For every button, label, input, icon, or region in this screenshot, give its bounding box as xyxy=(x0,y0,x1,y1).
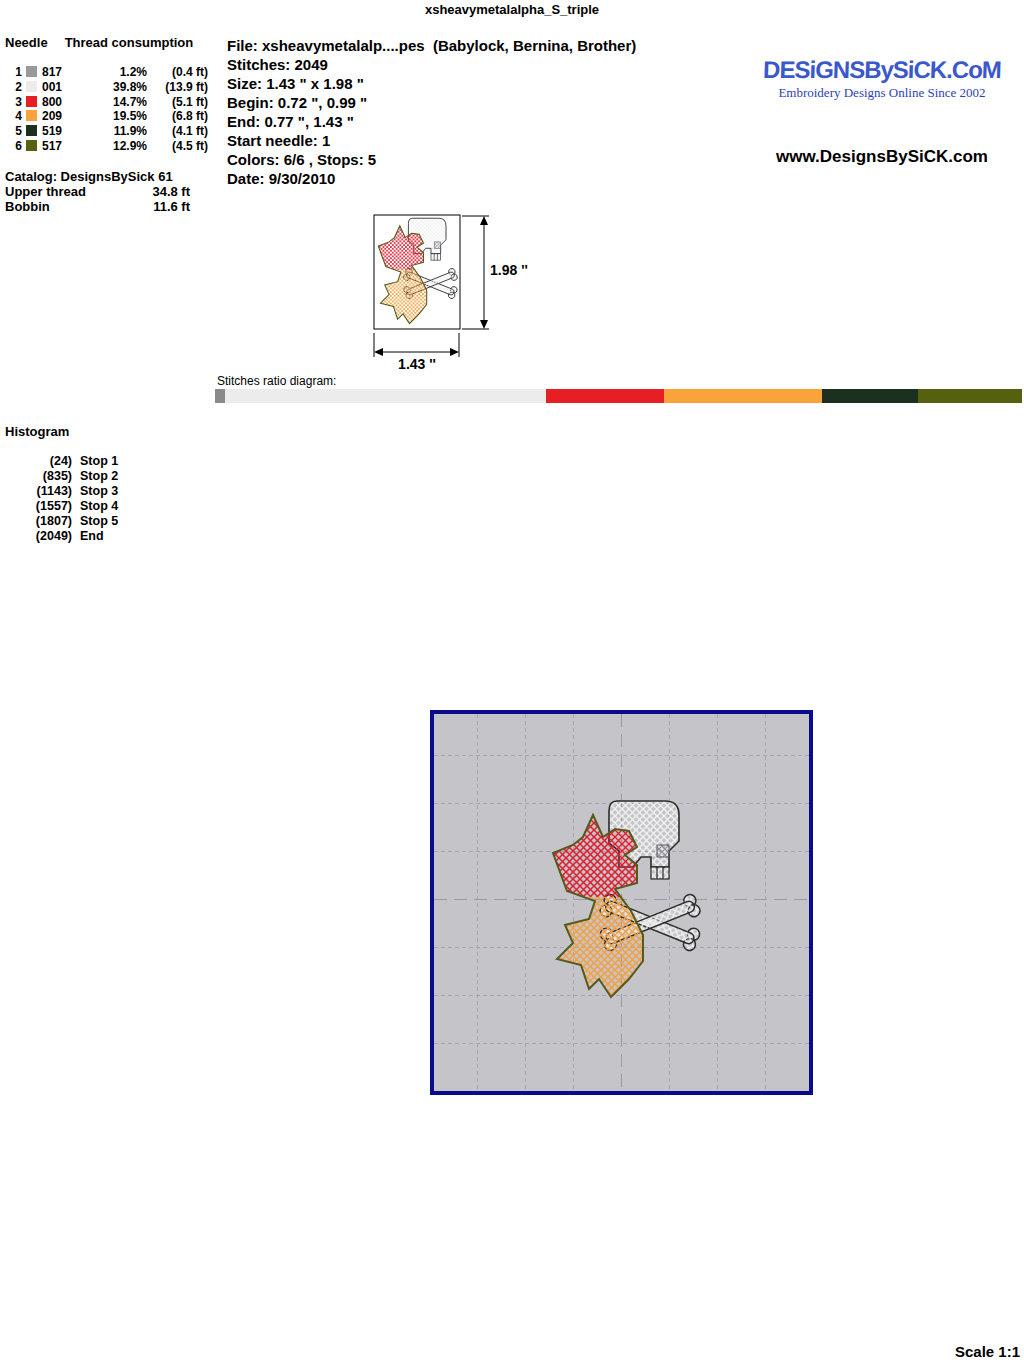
needle-row: 551911.9%(4.1 ft) xyxy=(0,124,212,138)
histogram-count: (24) xyxy=(0,454,72,468)
bobbin-line: Bobbin 11.6 ft xyxy=(5,199,190,214)
file-info-block: File: xsheavymetalalp....pes (Babylock, … xyxy=(227,36,747,188)
thread-color-swatch xyxy=(26,125,37,136)
histogram-row: (1143)Stop 3 xyxy=(0,484,200,499)
thread-color-swatch xyxy=(26,66,37,77)
needle-number: 2 xyxy=(0,80,22,94)
design-preview-grid xyxy=(434,714,809,1091)
ratio-segment xyxy=(215,389,225,403)
thread-color-swatch xyxy=(26,81,37,92)
height-dimension-label: 1.98 '' xyxy=(490,262,528,278)
thread-percent: 12.9% xyxy=(95,139,147,153)
histogram-row: (24)Stop 1 xyxy=(0,454,200,469)
size-line: Size: 1.43 " x 1.98 " xyxy=(227,74,747,93)
needle-number: 4 xyxy=(0,109,22,123)
thread-code: 209 xyxy=(42,109,62,123)
histogram-count: (835) xyxy=(0,469,72,483)
needle-row: 651712.9%(4.5 ft) xyxy=(0,139,212,153)
thread-color-swatch xyxy=(26,110,37,121)
thread-code: 001 xyxy=(42,80,62,94)
ratio-segment xyxy=(822,389,918,403)
ratio-segment xyxy=(546,389,665,403)
needle-number: 5 xyxy=(0,124,22,138)
stitches-ratio-bar xyxy=(215,389,1022,403)
histogram-label: Stop 5 xyxy=(80,514,118,528)
histogram-count: (1143) xyxy=(0,484,72,498)
needle-number: 1 xyxy=(0,65,22,79)
design-dimension-preview xyxy=(366,205,580,380)
needle-row: 380014.7%(5.1 ft) xyxy=(0,95,212,109)
file-name-line: File: xsheavymetalalp....pes (Babylock, … xyxy=(227,36,747,55)
ratio-segment xyxy=(918,389,1022,403)
histogram-row: (1557)Stop 4 xyxy=(0,499,200,514)
histogram-label: Stop 2 xyxy=(80,469,118,483)
histogram-count: (1557) xyxy=(0,499,72,513)
histogram-row: (1807)Stop 5 xyxy=(0,514,200,529)
needle-number: 3 xyxy=(0,95,22,109)
stitches-line: Stitches: 2049 xyxy=(227,55,747,74)
thread-length: (0.4 ft) xyxy=(150,65,208,79)
thread-code: 517 xyxy=(42,139,62,153)
website-url: www.DesignsBySiCK.com xyxy=(742,147,1022,167)
ratio-segment xyxy=(664,389,821,403)
needle-number: 6 xyxy=(0,139,22,153)
thread-code: 800 xyxy=(42,95,62,109)
thread-length: (13.9 ft) xyxy=(150,80,208,94)
needle-row: 18171.2%(0.4 ft) xyxy=(0,65,212,79)
page-title: xsheavymetalalpha_S_triple xyxy=(0,2,1024,17)
needle-row: 420919.5%(6.8 ft) xyxy=(0,109,212,123)
colors-stops-line: Colors: 6/6 , Stops: 5 xyxy=(227,150,747,169)
begin-line: Begin: 0.72 ", 0.99 " xyxy=(227,93,747,112)
bobbin-value: 11.6 ft xyxy=(120,199,190,214)
needle-row: 200139.8%(13.9 ft) xyxy=(0,80,212,94)
brand-block: DESiGNSBySiCK.CoM Embroidery Designs Onl… xyxy=(742,56,1022,101)
width-dimension-label: 1.43 '' xyxy=(382,356,452,372)
width-dimension-line xyxy=(374,333,459,357)
thread-code: 519 xyxy=(42,124,62,138)
histogram-label: Stop 4 xyxy=(80,499,118,513)
design-preview-canvas xyxy=(430,710,813,1095)
catalog-line: Catalog: DesignsBySick 61 xyxy=(5,169,173,184)
stitched-design xyxy=(545,795,705,1005)
thread-percent: 39.8% xyxy=(95,80,147,94)
needle-table-header: NeedleThread consumption xyxy=(5,35,193,50)
histogram-title: Histogram xyxy=(5,424,69,439)
print-preview-page: xsheavymetalalpha_S_triple NeedleThread … xyxy=(0,0,1024,1370)
thread-length: (5.1 ft) xyxy=(150,95,208,109)
scale-label: Scale 1:1 xyxy=(930,1343,1020,1360)
brand-tagline: Embroidery Designs Online Since 2002 xyxy=(742,85,1022,101)
height-dimension-line xyxy=(462,216,489,329)
thread-percent: 1.2% xyxy=(95,65,147,79)
histogram-row: (2049)End xyxy=(0,529,200,544)
bobbin-label: Bobbin xyxy=(5,199,50,214)
designsbysick-logo: DESiGNSBySiCK.CoM xyxy=(742,56,1023,84)
histogram-count: (2049) xyxy=(0,529,72,543)
histogram-label: Stop 3 xyxy=(80,484,118,498)
histogram-row: (835)Stop 2 xyxy=(0,469,200,484)
upper-thread-line: Upper thread 34.8 ft xyxy=(5,184,190,199)
thread-percent: 19.5% xyxy=(95,109,147,123)
thread-color-swatch xyxy=(26,96,37,107)
histogram-count: (1807) xyxy=(0,514,72,528)
thread-length: (6.8 ft) xyxy=(150,109,208,123)
thread-percent: 14.7% xyxy=(95,95,147,109)
thread-length: (4.5 ft) xyxy=(150,139,208,153)
histogram-label: End xyxy=(80,529,104,543)
thread-color-swatch xyxy=(26,140,37,151)
end-line: End: 0.77 ", 1.43 " xyxy=(227,112,747,131)
thread-length: (4.1 ft) xyxy=(150,124,208,138)
histogram-label: Stop 1 xyxy=(80,454,118,468)
ratio-segment xyxy=(225,389,546,403)
needle-column-header: Needle xyxy=(5,35,48,50)
thread-code: 817 xyxy=(42,65,62,79)
thread-consumption-column-header: Thread consumption xyxy=(65,35,194,50)
start-needle-line: Start needle: 1 xyxy=(227,131,747,150)
ratio-diagram-label: Stitches ratio diagram: xyxy=(217,374,336,388)
upper-thread-value: 34.8 ft xyxy=(120,184,190,199)
thread-percent: 11.9% xyxy=(95,124,147,138)
upper-thread-label: Upper thread xyxy=(5,184,86,199)
date-line: Date: 9/30/2010 xyxy=(227,169,747,188)
